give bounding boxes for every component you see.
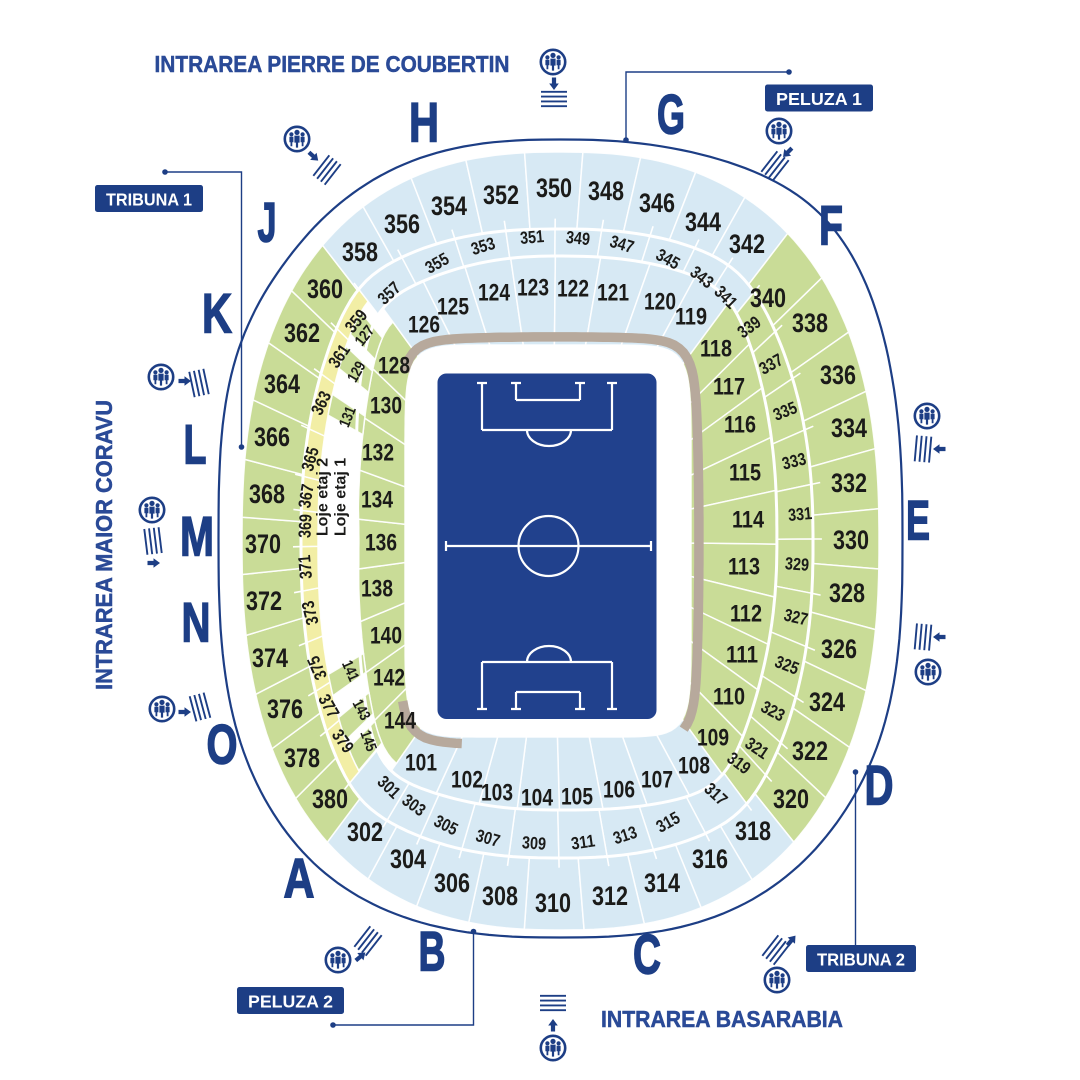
svg-text:369: 369 [294,513,315,538]
svg-text:350: 350 [536,173,572,203]
svg-text:O: O [207,713,238,776]
svg-text:F: F [819,194,843,257]
svg-text:L: L [184,413,207,476]
svg-text:310: 310 [535,888,571,918]
svg-text:308: 308 [482,881,518,911]
svg-text:372: 372 [246,586,282,616]
svg-text:326: 326 [821,634,857,664]
svg-text:362: 362 [284,318,320,348]
svg-text:306: 306 [434,868,470,898]
svg-text:140: 140 [370,623,402,650]
svg-text:356: 356 [384,209,420,239]
svg-text:128: 128 [378,353,410,380]
svg-text:A: A [284,847,315,910]
svg-text:120: 120 [644,289,676,316]
svg-text:INTRAREA PIERRE DE COUBERTIN: INTRAREA PIERRE DE COUBERTIN [155,51,510,77]
svg-text:H: H [409,91,439,154]
svg-text:INTRAREA BASARABIA: INTRAREA BASARABIA [601,1006,843,1032]
svg-text:126: 126 [408,312,440,339]
svg-text:318: 318 [735,816,771,846]
svg-text:130: 130 [370,393,402,420]
svg-text:380: 380 [312,784,348,814]
svg-text:123: 123 [517,275,549,302]
svg-text:336: 336 [820,360,856,390]
svg-text:370: 370 [245,529,281,559]
svg-text:101: 101 [405,750,437,777]
svg-text:324: 324 [809,687,845,717]
svg-text:332: 332 [831,468,867,498]
svg-text:108: 108 [678,753,710,780]
svg-text:106: 106 [603,777,635,804]
svg-text:114: 114 [732,507,765,534]
svg-text:124: 124 [478,280,511,307]
svg-text:Loje etaj 2: Loje etaj 2 [315,458,332,536]
svg-text:M: M [180,505,214,568]
svg-text:374: 374 [252,643,288,673]
svg-text:132: 132 [362,440,394,467]
svg-text:125: 125 [437,294,469,321]
svg-text:142: 142 [373,665,405,692]
svg-text:328: 328 [829,578,865,608]
svg-text:304: 304 [390,844,426,874]
svg-text:N: N [182,591,211,654]
svg-text:354: 354 [431,191,467,221]
svg-text:138: 138 [361,576,393,603]
svg-text:102: 102 [451,767,483,794]
svg-text:346: 346 [639,188,675,218]
svg-text:J: J [258,191,277,254]
svg-text:K: K [202,282,232,345]
svg-text:340: 340 [750,283,786,313]
svg-text:364: 364 [264,369,300,399]
svg-text:348: 348 [588,176,624,206]
svg-text:113: 113 [728,554,760,581]
svg-text:376: 376 [267,694,303,724]
svg-text:D: D [865,754,894,817]
svg-text:311: 311 [570,830,597,853]
svg-text:B: B [419,920,446,983]
svg-text:342: 342 [729,229,765,259]
svg-text:329: 329 [784,553,810,575]
svg-text:331: 331 [787,503,813,525]
svg-text:349: 349 [565,227,591,249]
svg-text:352: 352 [483,180,519,210]
svg-text:G: G [657,83,685,146]
svg-text:351: 351 [519,226,545,248]
svg-text:338: 338 [792,308,828,338]
svg-text:104: 104 [521,785,554,812]
svg-text:103: 103 [481,780,513,807]
svg-text:309: 309 [521,832,547,854]
svg-text:111: 111 [726,642,758,669]
svg-text:378: 378 [284,743,320,773]
svg-text:144: 144 [384,708,417,735]
svg-text:360: 360 [307,274,343,304]
svg-text:TRIBUNA 2: TRIBUNA 2 [817,950,905,970]
svg-text:134: 134 [361,487,394,514]
svg-text:PELUZA 1: PELUZA 1 [776,89,862,109]
svg-text:136: 136 [365,530,397,557]
svg-text:109: 109 [697,725,729,752]
svg-text:112: 112 [730,601,762,628]
svg-text:INTRAREA MAIOR CORAVU: INTRAREA MAIOR CORAVU [91,400,117,690]
svg-text:110: 110 [713,684,745,711]
svg-text:Loje etaj 1: Loje etaj 1 [333,458,350,536]
svg-text:TRIBUNA 1: TRIBUNA 1 [106,190,192,210]
svg-text:314: 314 [644,868,680,898]
svg-text:C: C [633,923,661,986]
svg-text:358: 358 [342,237,378,267]
svg-text:302: 302 [347,817,383,847]
svg-text:117: 117 [713,374,745,401]
svg-text:316: 316 [692,844,728,874]
svg-text:330: 330 [833,525,869,555]
svg-text:119: 119 [675,304,707,331]
svg-text:115: 115 [729,460,761,487]
svg-text:116: 116 [724,412,756,439]
svg-text:322: 322 [792,736,828,766]
svg-text:312: 312 [592,881,628,911]
svg-text:121: 121 [597,280,629,307]
svg-text:107: 107 [641,767,673,794]
svg-text:371: 371 [294,554,316,580]
svg-text:105: 105 [561,784,593,811]
svg-text:PELUZA 2: PELUZA 2 [248,992,333,1012]
svg-text:118: 118 [700,336,732,363]
svg-text:E: E [906,489,930,552]
svg-text:344: 344 [685,207,721,237]
svg-text:366: 366 [254,422,290,452]
svg-text:334: 334 [831,413,867,443]
svg-text:320: 320 [773,784,809,814]
svg-text:368: 368 [249,479,285,509]
svg-text:122: 122 [557,276,589,303]
